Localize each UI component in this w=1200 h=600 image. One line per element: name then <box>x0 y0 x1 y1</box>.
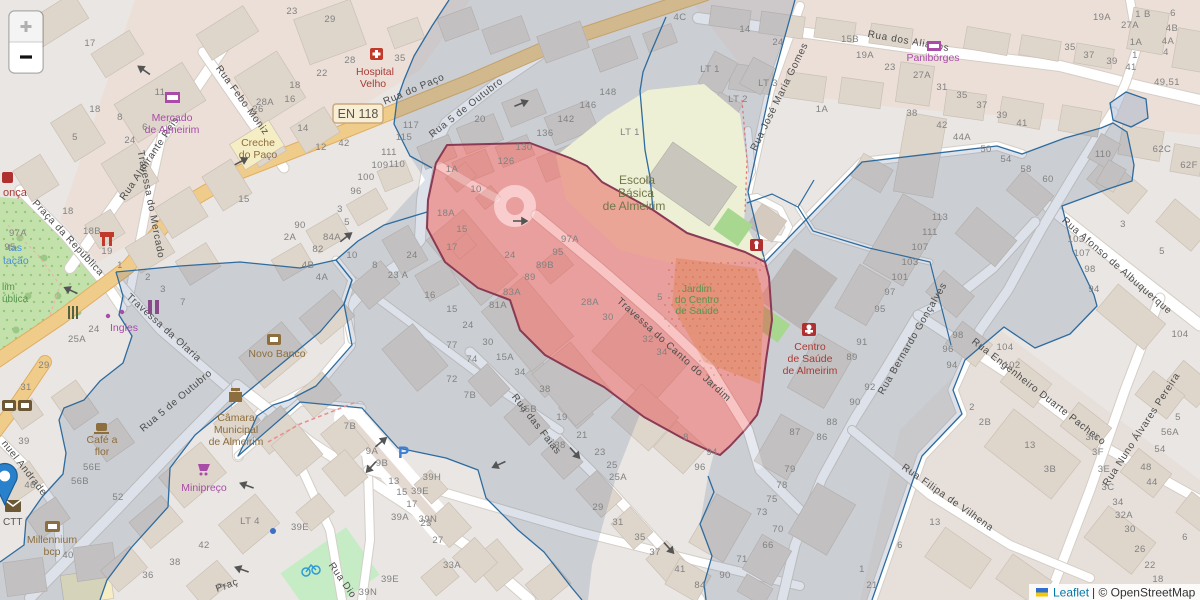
svg-text:38: 38 <box>169 557 180 568</box>
svg-text:31: 31 <box>20 382 31 393</box>
svg-text:6: 6 <box>897 540 903 551</box>
svg-text:36: 36 <box>142 570 153 581</box>
svg-text:32A: 32A <box>1115 510 1133 521</box>
svg-text:95: 95 <box>4 242 15 253</box>
svg-text:40: 40 <box>62 550 73 561</box>
svg-text:75: 75 <box>766 494 777 505</box>
svg-text:35: 35 <box>1064 42 1075 53</box>
svg-text:25: 25 <box>606 460 617 471</box>
svg-text:de Almeirim: de Almeirim <box>145 124 200 136</box>
svg-text:110: 110 <box>1095 149 1111 160</box>
svg-text:111: 111 <box>381 147 397 158</box>
svg-text:60: 60 <box>1042 174 1053 185</box>
svg-text:Municipal: Municipal <box>214 424 258 436</box>
svg-text:LT 4: LT 4 <box>240 516 260 527</box>
svg-text:15A: 15A <box>496 352 514 363</box>
svg-text:66: 66 <box>762 540 773 551</box>
svg-text:4B: 4B <box>302 260 314 271</box>
svg-text:5: 5 <box>657 292 663 303</box>
svg-text:1A: 1A <box>446 164 459 175</box>
svg-text:23: 23 <box>884 62 895 73</box>
svg-text:Panibörges: Panibörges <box>906 52 959 64</box>
svg-text:33A: 33A <box>443 560 461 571</box>
svg-text:146: 146 <box>579 100 596 111</box>
svg-text:Velho: Velho <box>360 78 386 90</box>
svg-text:24: 24 <box>462 320 473 331</box>
svg-text:25A: 25A <box>609 472 627 483</box>
svg-text:58: 58 <box>1020 164 1031 175</box>
svg-text:bcp: bcp <box>44 546 61 558</box>
svg-text:39N: 39N <box>419 514 438 525</box>
svg-text:96: 96 <box>694 462 705 473</box>
svg-text:29: 29 <box>592 502 603 513</box>
svg-text:41: 41 <box>1125 62 1136 73</box>
svg-text:54: 54 <box>1000 154 1011 165</box>
svg-text:6: 6 <box>142 122 148 133</box>
svg-text:115: 115 <box>396 132 412 143</box>
svg-text:14: 14 <box>739 24 750 35</box>
svg-text:107: 107 <box>911 242 928 253</box>
svg-text:de Saúde: de Saúde <box>676 306 719 317</box>
svg-text:13: 13 <box>388 476 399 487</box>
svg-text:17: 17 <box>406 499 417 510</box>
svg-text:73: 73 <box>756 507 767 518</box>
svg-text:30: 30 <box>1124 524 1135 535</box>
svg-text:111: 111 <box>922 227 938 238</box>
svg-text:130: 130 <box>515 142 532 153</box>
svg-text:de Almeirim: de Almeirim <box>603 199 666 213</box>
svg-text:Câmara: Câmara <box>217 412 255 424</box>
svg-text:19: 19 <box>556 412 567 423</box>
svg-text:2A: 2A <box>284 232 297 243</box>
svg-text:7B: 7B <box>344 421 356 432</box>
svg-text:34: 34 <box>656 347 667 358</box>
svg-text:LT 3: LT 3 <box>758 78 778 89</box>
svg-text:30: 30 <box>482 337 493 348</box>
svg-text:P: P <box>398 443 409 462</box>
svg-text:88: 88 <box>826 417 837 428</box>
svg-text:Hospital: Hospital <box>356 66 394 78</box>
svg-text:54: 54 <box>1154 444 1165 455</box>
svg-text:79: 79 <box>784 464 795 475</box>
svg-text:39: 39 <box>18 436 29 447</box>
svg-text:39A: 39A <box>391 512 409 523</box>
svg-text:22: 22 <box>1144 560 1155 571</box>
svg-text:89: 89 <box>524 272 535 283</box>
svg-text:103: 103 <box>901 257 918 268</box>
svg-text:97A: 97A <box>561 234 579 245</box>
svg-text:34: 34 <box>514 367 525 378</box>
svg-text:39N: 39N <box>359 587 378 598</box>
svg-text:LT 2: LT 2 <box>728 94 748 105</box>
svg-text:ública: ública <box>2 294 29 305</box>
svg-text:78: 78 <box>776 480 787 491</box>
svg-text:31: 31 <box>612 517 623 528</box>
svg-text:12: 12 <box>315 142 326 153</box>
svg-text:4C: 4C <box>674 12 687 23</box>
svg-text:tação: tação <box>3 255 29 267</box>
svg-text:82: 82 <box>312 244 323 255</box>
svg-text:98: 98 <box>952 330 963 341</box>
svg-text:Básica: Básica <box>618 186 654 200</box>
svg-text:21: 21 <box>866 580 877 591</box>
svg-text:1A: 1A <box>1130 37 1143 48</box>
svg-text:56E: 56E <box>83 462 101 473</box>
svg-text:18A: 18A <box>437 208 455 219</box>
svg-text:24: 24 <box>406 250 417 261</box>
svg-text:27: 27 <box>432 535 443 546</box>
svg-text:16: 16 <box>424 290 435 301</box>
svg-text:83A: 83A <box>503 287 521 298</box>
svg-text:de Saúde: de Saúde <box>788 353 833 365</box>
svg-text:38: 38 <box>906 108 917 119</box>
svg-text:27A: 27A <box>1121 20 1139 31</box>
svg-text:1: 1 <box>117 260 123 271</box>
svg-text:17: 17 <box>446 242 457 253</box>
svg-text:EN 118: EN 118 <box>338 107 379 121</box>
svg-text:29: 29 <box>324 14 335 25</box>
svg-text:109: 109 <box>371 160 388 171</box>
svg-text:37: 37 <box>649 547 660 558</box>
svg-text:97A: 97A <box>9 228 27 239</box>
svg-text:3: 3 <box>160 284 166 295</box>
svg-text:35: 35 <box>634 532 645 543</box>
svg-text:Novo Banco: Novo Banco <box>248 348 305 360</box>
svg-text:17: 17 <box>84 38 95 49</box>
svg-text:13: 13 <box>929 517 940 528</box>
svg-text:72: 72 <box>446 374 457 385</box>
svg-text:91: 91 <box>856 337 867 348</box>
svg-text:49,51: 49,51 <box>1154 77 1180 88</box>
svg-text:Pr: Pr <box>217 582 227 593</box>
svg-text:18B: 18B <box>83 226 101 237</box>
svg-text:onça: onça <box>3 187 28 199</box>
svg-text:Minipreço: Minipreço <box>181 482 227 494</box>
svg-text:2: 2 <box>145 272 151 283</box>
svg-text:117: 117 <box>403 120 419 131</box>
svg-text:95: 95 <box>552 247 563 258</box>
svg-text:6: 6 <box>1182 532 1188 543</box>
svg-text:35: 35 <box>394 53 405 64</box>
svg-text:39: 39 <box>996 110 1007 121</box>
svg-text:Café a: Café a <box>87 434 118 446</box>
svg-text:28A: 28A <box>256 97 274 108</box>
svg-text:103: 103 <box>1067 234 1084 245</box>
svg-text:10: 10 <box>470 184 481 195</box>
svg-text:15: 15 <box>446 304 457 315</box>
svg-text:96: 96 <box>942 344 953 355</box>
svg-text:48: 48 <box>1140 462 1151 473</box>
svg-text:flor: flor <box>95 446 110 458</box>
svg-text:38: 38 <box>554 440 565 451</box>
svg-text:8: 8 <box>372 260 378 271</box>
svg-text:42: 42 <box>338 138 349 149</box>
svg-text:37: 37 <box>976 100 987 111</box>
svg-text:27A: 27A <box>913 70 931 81</box>
svg-text:56A: 56A <box>1161 427 1179 438</box>
svg-text:52: 52 <box>112 492 123 503</box>
svg-text:15: 15 <box>456 224 467 235</box>
svg-text:9B: 9B <box>376 458 388 469</box>
svg-text:94: 94 <box>946 360 957 371</box>
svg-text:Mercado: Mercado <box>152 112 193 124</box>
svg-text:110: 110 <box>389 159 405 170</box>
svg-text:2B: 2B <box>979 417 991 428</box>
svg-text:98: 98 <box>1084 264 1095 275</box>
svg-text:15: 15 <box>396 487 407 498</box>
svg-text:19: 19 <box>101 246 112 257</box>
svg-text:6: 6 <box>1170 8 1176 19</box>
svg-text:41: 41 <box>674 564 685 575</box>
svg-text:13: 13 <box>1024 440 1035 451</box>
svg-text:44: 44 <box>1146 477 1157 488</box>
svg-text:77: 77 <box>446 340 457 351</box>
svg-text:28: 28 <box>344 55 355 66</box>
svg-text:15: 15 <box>238 194 249 205</box>
svg-text:50: 50 <box>980 144 991 155</box>
svg-text:102: 102 <box>1003 360 1020 371</box>
svg-text:19A: 19A <box>856 50 874 61</box>
svg-text:25A: 25A <box>68 334 86 345</box>
svg-text:39H: 39H <box>423 472 442 483</box>
svg-text:1A: 1A <box>816 104 829 115</box>
svg-text:23: 23 <box>286 6 297 17</box>
svg-text:24: 24 <box>124 135 135 146</box>
svg-text:9A: 9A <box>366 446 379 457</box>
svg-text:14: 14 <box>297 123 308 134</box>
svg-text:10: 10 <box>346 250 357 261</box>
svg-text:1: 1 <box>859 564 865 575</box>
svg-text:30: 30 <box>602 312 613 323</box>
svg-text:90: 90 <box>849 397 860 408</box>
svg-text:24: 24 <box>772 37 783 48</box>
svg-text:do Centro: do Centro <box>675 295 719 306</box>
svg-text:94: 94 <box>1088 284 1099 295</box>
svg-text:de Almeirim: de Almeirim <box>209 436 264 448</box>
svg-text:97: 97 <box>884 287 895 298</box>
svg-text:de Almeirim: de Almeirim <box>783 365 838 377</box>
svg-text:142: 142 <box>557 114 574 125</box>
svg-text:101: 101 <box>891 272 908 283</box>
svg-text:LT 1: LT 1 <box>700 64 720 75</box>
svg-text:29: 29 <box>38 360 49 371</box>
svg-text:35: 35 <box>956 90 967 101</box>
svg-text:104: 104 <box>1171 329 1188 340</box>
svg-text:8: 8 <box>683 432 689 443</box>
svg-text:3: 3 <box>337 204 343 215</box>
svg-text:104: 104 <box>996 342 1013 353</box>
svg-text:7B: 7B <box>464 390 476 401</box>
svg-text:Jardim: Jardim <box>682 284 712 295</box>
svg-text:18: 18 <box>1152 574 1163 585</box>
svg-text:89: 89 <box>846 352 857 363</box>
svg-text:4B: 4B <box>1166 23 1178 34</box>
svg-text:62C: 62C <box>1153 144 1172 155</box>
svg-text:2: 2 <box>969 402 975 413</box>
svg-text:18: 18 <box>89 104 100 115</box>
svg-text:1: 1 <box>1132 50 1138 61</box>
svg-text:Centro: Centro <box>794 341 826 353</box>
svg-text:34: 34 <box>1112 497 1123 508</box>
svg-text:3F: 3F <box>1092 447 1104 458</box>
svg-text:62F: 62F <box>1180 160 1198 171</box>
svg-text:56B: 56B <box>71 476 89 487</box>
svg-text:74: 74 <box>466 354 477 365</box>
svg-text:148: 148 <box>599 87 616 98</box>
svg-text:| © OpenStreetMap: | © OpenStreetMap <box>1092 586 1196 600</box>
svg-text:92: 92 <box>864 382 875 393</box>
svg-text:42: 42 <box>198 540 209 551</box>
svg-text:39E: 39E <box>411 486 429 497</box>
svg-text:4: 4 <box>1163 47 1169 58</box>
svg-text:100: 100 <box>357 172 374 183</box>
svg-text:84A: 84A <box>323 232 341 243</box>
svg-text:15B: 15B <box>841 34 859 45</box>
svg-text:126: 126 <box>497 156 514 167</box>
svg-text:107: 107 <box>1073 248 1090 259</box>
svg-text:37: 37 <box>1083 50 1094 61</box>
svg-text:32: 32 <box>642 334 653 345</box>
svg-text:lim: lim <box>2 282 15 293</box>
svg-text:5: 5 <box>344 217 350 228</box>
svg-text:11: 11 <box>155 87 166 98</box>
svg-text:1 B: 1 B <box>1135 9 1150 20</box>
svg-text:15B: 15B <box>519 404 537 415</box>
svg-text:41: 41 <box>1016 118 1027 129</box>
svg-text:3: 3 <box>1120 219 1126 230</box>
svg-text:4A: 4A <box>1162 36 1175 47</box>
svg-text:24: 24 <box>88 324 99 335</box>
svg-text:39: 39 <box>1106 56 1117 67</box>
svg-text:LT 1: LT 1 <box>620 127 640 138</box>
svg-text:CTT: CTT <box>3 517 22 528</box>
svg-text:28A: 28A <box>581 297 599 308</box>
svg-text:21: 21 <box>576 430 587 441</box>
svg-text:18: 18 <box>289 80 300 91</box>
svg-text:96: 96 <box>350 186 361 197</box>
svg-text:136: 136 <box>536 128 553 139</box>
svg-text:90: 90 <box>294 220 305 231</box>
svg-text:23 A: 23 A <box>388 270 409 281</box>
svg-text:46: 46 <box>24 480 35 491</box>
svg-text:3H: 3H <box>1086 432 1099 443</box>
svg-text:42: 42 <box>936 120 947 131</box>
svg-text:39E: 39E <box>291 522 309 533</box>
svg-text:5: 5 <box>1159 246 1165 257</box>
svg-text:38: 38 <box>539 384 550 395</box>
svg-text:4A: 4A <box>316 272 329 283</box>
svg-text:Millennium: Millennium <box>27 534 77 546</box>
svg-text:44A: 44A <box>953 132 971 143</box>
svg-text:71: 71 <box>736 554 747 565</box>
svg-text:22: 22 <box>316 68 327 79</box>
svg-text:84: 84 <box>694 580 705 591</box>
svg-text:5: 5 <box>1175 412 1181 423</box>
svg-text:16: 16 <box>284 94 295 105</box>
svg-text:113: 113 <box>932 212 948 223</box>
svg-text:5: 5 <box>72 132 78 143</box>
svg-text:23: 23 <box>594 447 605 458</box>
svg-text:90: 90 <box>719 570 730 581</box>
svg-text:87: 87 <box>789 427 800 438</box>
svg-text:Ingles: Ingles <box>110 322 138 334</box>
svg-text:70: 70 <box>772 524 783 535</box>
svg-text:3B: 3B <box>1044 464 1056 475</box>
svg-text:39E: 39E <box>381 574 399 585</box>
svg-text:Escola: Escola <box>619 173 655 187</box>
svg-text:3C: 3C <box>1102 482 1115 493</box>
svg-text:86: 86 <box>816 432 827 443</box>
svg-text:89B: 89B <box>536 260 554 271</box>
svg-text:3E: 3E <box>1098 464 1110 475</box>
svg-text:31: 31 <box>936 82 947 93</box>
svg-text:7: 7 <box>180 297 186 308</box>
svg-text:Creche: Creche <box>241 137 275 149</box>
svg-text:8: 8 <box>117 112 123 123</box>
svg-text:81A: 81A <box>489 300 507 311</box>
svg-text:95: 95 <box>874 304 885 315</box>
svg-text:18: 18 <box>62 206 73 217</box>
svg-text:Leaflet: Leaflet <box>1053 586 1090 600</box>
svg-text:94: 94 <box>706 447 717 458</box>
svg-text:20: 20 <box>474 114 485 125</box>
svg-text:19A: 19A <box>1093 12 1111 23</box>
svg-text:26: 26 <box>1134 544 1145 555</box>
svg-text:24: 24 <box>504 250 515 261</box>
